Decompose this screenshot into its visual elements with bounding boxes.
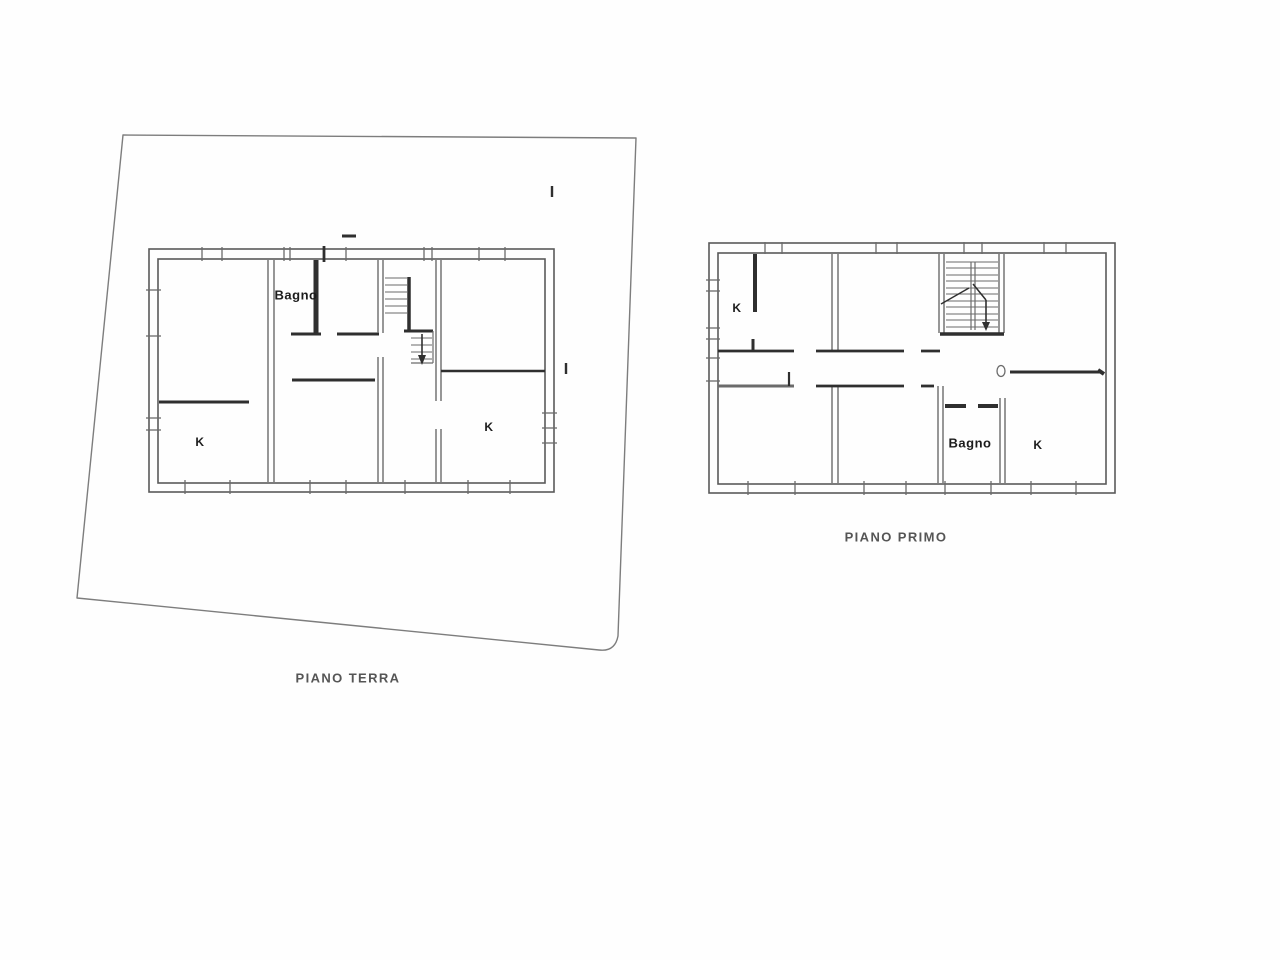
- floorplan-sheet: Bagno K K K Bagno K PIANO TERRA PIANO PR…: [0, 0, 1280, 960]
- piano-terra-plan: [77, 135, 636, 650]
- door-pivot-circle: [997, 366, 1005, 377]
- wall-segment: [941, 288, 969, 304]
- room-label-k-ground-right: K: [484, 420, 493, 434]
- building-inner-wall: [718, 253, 1106, 484]
- floorplan-drawing: [0, 0, 1280, 960]
- parcel-boundary: [77, 135, 636, 650]
- room-label-bagno-ground: Bagno: [275, 288, 318, 303]
- room-label-k-ground-left: K: [195, 435, 204, 449]
- room-label-bagno-first: Bagno: [949, 436, 992, 451]
- floor-title-piano-terra: PIANO TERRA: [296, 671, 401, 686]
- room-label-k-first-right: K: [1033, 438, 1042, 452]
- floor-title-piano-primo: PIANO PRIMO: [845, 530, 948, 545]
- room-label-k-first-left: K: [732, 301, 741, 315]
- building-outer-wall: [709, 243, 1115, 493]
- piano-primo-plan: [706, 242, 1115, 495]
